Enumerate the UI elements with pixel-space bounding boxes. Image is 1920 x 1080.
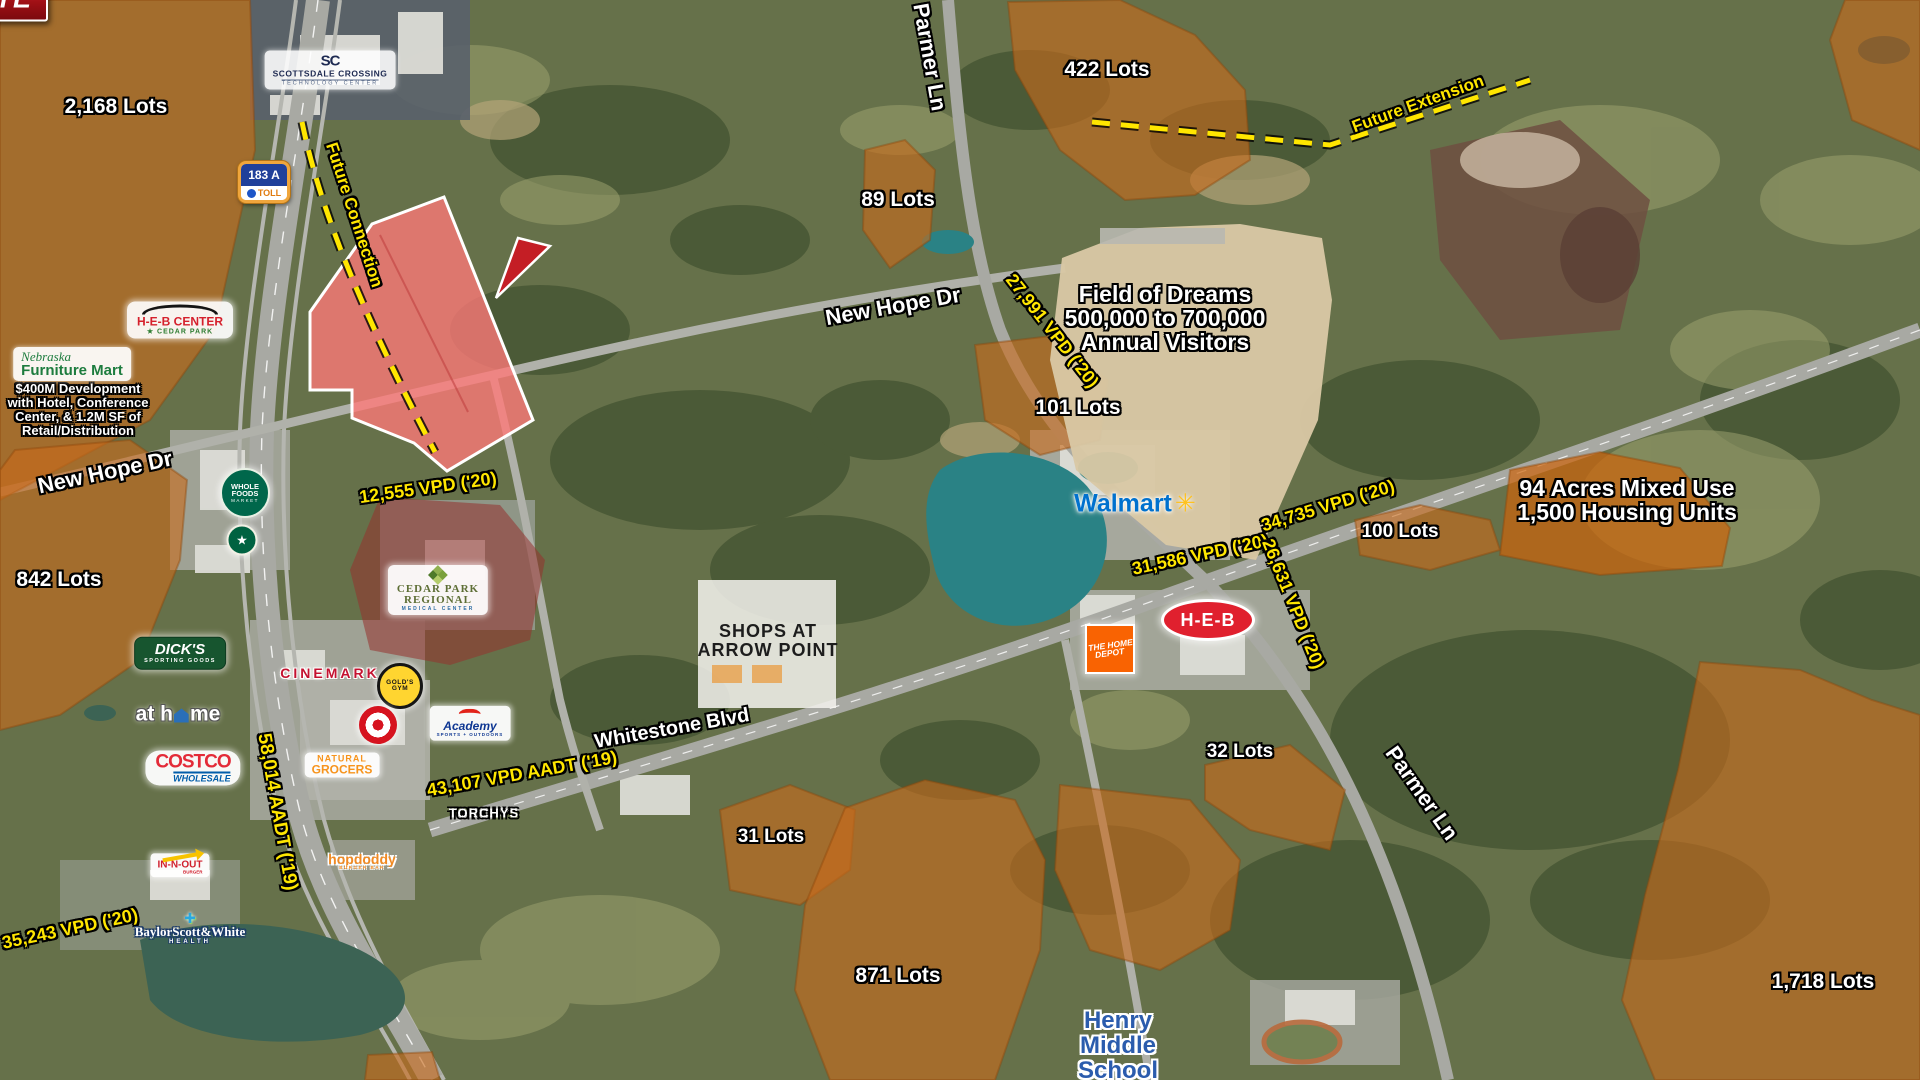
cinemark-logo: CINEMARK	[280, 666, 379, 680]
future-connection-label: Future Connection	[322, 140, 386, 289]
wf2: MARKET	[231, 499, 259, 504]
road-new-hope-dr-west: New Hope Dr	[36, 446, 175, 497]
annotation-layer: SITE 2,168 Lots422 Lots89 Lots101 Lots84…	[0, 0, 1920, 1080]
co2: WHOLESALE	[173, 772, 231, 784]
henry-middle-school-label: HenryMiddleSchool	[1078, 1008, 1158, 1080]
road-new-hope-dr-east: New Hope Dr	[824, 283, 963, 330]
lots-31: 31 Lots	[738, 827, 805, 847]
field-of-dreams-note: Field of Dreams500,000 to 700,000Annual …	[1065, 282, 1266, 354]
academy-logo: AcademySPORTS + OUTDOORS	[430, 706, 511, 741]
hdp2: DEPOT	[1095, 647, 1125, 659]
co1: COSTCO	[155, 753, 230, 772]
hebstore-logo: H-E-B	[1161, 599, 1255, 641]
cp2: REGIONAL	[404, 595, 472, 606]
traffic-35243: 35,243 VPD ('20)	[0, 905, 139, 952]
wf1: FOODS	[232, 490, 259, 498]
hd2: BURGER BAR	[339, 866, 385, 871]
road-whitestone-blvd: Whitestone Blvd	[593, 705, 751, 753]
athome-logo: at hme	[136, 704, 221, 725]
traffic-31586: 31,586 VPD ('20)	[1130, 531, 1269, 578]
by-cross: ✚	[184, 911, 196, 925]
hopdoddy-logo: hopdoddyBURGER BAR	[328, 852, 396, 871]
by2: HEALTH	[169, 939, 211, 945]
dicks-logo: DICK'SSPORTING GOODS	[134, 637, 226, 670]
ng2: GROCERS	[312, 764, 373, 776]
road-parmer-ln-south: Parmer Ln	[1381, 742, 1462, 844]
starbucks-logo: ★	[227, 525, 258, 556]
golds-logo: GOLD'SGYM	[377, 663, 423, 709]
cp3: MEDICAL CENTER	[402, 607, 475, 612]
road-parmer-ln-north: Parmer Ln	[909, 1, 951, 112]
scottsdale-logo: SCSCOTTSDALE CROSSINGTECHNOLOGY CENTER	[265, 51, 396, 90]
mixed-use-note: 94 Acres Mixed Use1,500 Housing Units	[1517, 476, 1737, 524]
lots-89: 89 Lots	[861, 189, 935, 211]
lots-101: 101 Lots	[1035, 397, 1120, 419]
heb: H-E-B	[1181, 611, 1236, 629]
traffic-12555: 12,555 VPD ('20)	[358, 469, 498, 507]
walmart-logo: Walmart✳	[1074, 492, 1196, 517]
lots-100: 100 Lots	[1361, 522, 1438, 542]
wholefoods-logo: WHOLEFOODSMARKET	[220, 468, 270, 518]
io2: BURGER	[183, 870, 203, 875]
torchys-logo: TORCHYS	[449, 807, 519, 820]
homedepot-logo: THE HOMEDEPOT	[1085, 624, 1135, 674]
dk2: SPORTING GOODS	[144, 659, 216, 665]
lots-1718: 1,718 Lots	[1772, 971, 1875, 993]
roof	[142, 305, 218, 315]
dk1: DICK'S	[155, 642, 205, 657]
site-callout: SITE	[0, 0, 48, 22]
sc-l1: SCOTTSDALE CROSSING	[273, 70, 388, 79]
wm1: Walmart	[1074, 492, 1172, 517]
ah-house	[174, 709, 189, 723]
ac1: Academy	[443, 720, 496, 732]
site-banner: SITE	[0, 0, 48, 22]
innout-logo: IN-N-OUTBURGER	[151, 853, 210, 877]
sc-l2: TECHNOLOGY CENTER	[282, 79, 379, 87]
nfm-development-note: $400M Developmentwith Hotel, ConferenceC…	[8, 382, 149, 438]
hc2: ★ CEDAR PARK	[147, 329, 213, 336]
cp-icon	[428, 565, 448, 585]
lots-2168: 2,168 Lots	[65, 96, 168, 118]
costco-logo: COSTCOWHOLESALE	[145, 751, 240, 786]
traffic-58014: 58,014 AADT ('19)	[253, 732, 300, 892]
traffic-43107: 43,107 VPD AADT ('19)	[425, 748, 618, 800]
ac2: SPORTS + OUTDOORS	[437, 733, 504, 738]
hd1: hopdoddy	[328, 852, 396, 866]
lots-842: 842 Lots	[16, 569, 101, 591]
naturalgrocers-logo: NATURALGROCERS	[305, 753, 380, 778]
toll-183a-shield: 183 ATOLL	[238, 161, 290, 203]
ah-t: me	[190, 704, 220, 725]
sb: ★	[236, 534, 248, 547]
wm-spark: ✳	[1175, 492, 1196, 517]
by1: BaylorScott&White	[135, 925, 245, 938]
traffic-26631: 26,631 VPD ('20)	[1258, 536, 1327, 671]
future-extension-label: Future Extension	[1350, 72, 1487, 136]
nfm2: Furniture Mart	[21, 363, 123, 378]
ah-t: at h	[136, 704, 173, 725]
lots-32: 32 Lots	[1207, 742, 1274, 762]
lots-871: 871 Lots	[855, 965, 940, 987]
hc1: H-E-B CENTER	[137, 316, 223, 328]
tor: TORCHYS	[449, 807, 519, 820]
baylor-logo: ✚BaylorScott&WhiteHEALTH	[135, 911, 245, 945]
cedarpark-logo: CEDAR PARKREGIONALMEDICAL CENTER	[388, 565, 488, 615]
tg-bull	[359, 706, 397, 744]
heb-center-logo: H-E-B CENTER★ CEDAR PARK	[127, 302, 233, 339]
nfm-logo: NebraskaFurniture Mart	[13, 347, 131, 381]
gg: GYM	[392, 686, 408, 693]
sc-mono: SC	[321, 54, 340, 69]
target-logo	[359, 706, 397, 744]
cm: CINEMARK	[280, 666, 379, 680]
aerial-map-canvas: SITE 2,168 Lots422 Lots89 Lots101 Lots84…	[0, 0, 1920, 1080]
shops-arrow-point-label: SHOPS ATARROW POINT	[698, 622, 839, 660]
lots-422: 422 Lots	[1064, 59, 1149, 81]
